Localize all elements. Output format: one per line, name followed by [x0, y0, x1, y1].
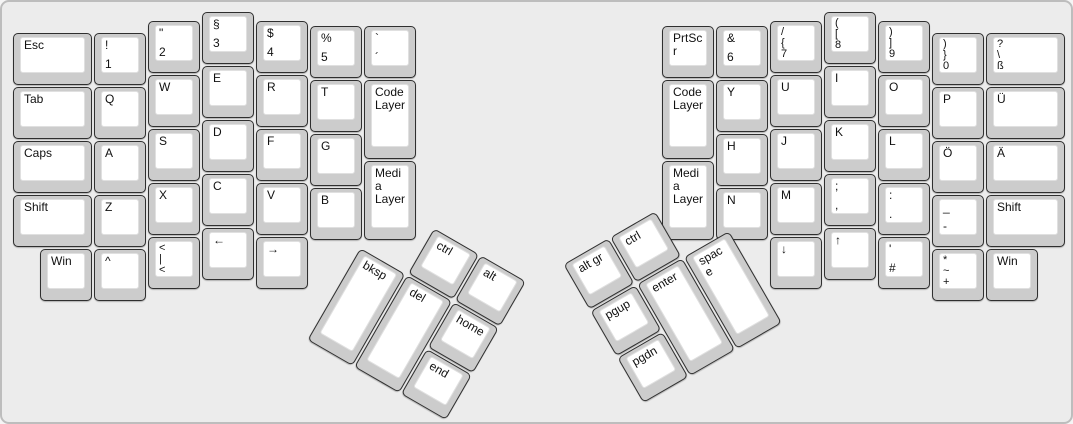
key-legend: ctrl: [623, 222, 656, 249]
key-legend: W: [159, 81, 190, 94]
key-s[interactable]: S: [148, 129, 200, 181]
key-legend: Shift: [24, 201, 82, 214]
keycap-surface: §3: [209, 16, 247, 52]
keycap-surface: $4: [263, 25, 301, 61]
key-legend: N: [727, 194, 758, 207]
key-legend: M: [781, 189, 812, 202]
key-legend: home: [454, 313, 487, 340]
keycap-surface: L: [885, 133, 923, 169]
key-legend: 1: [105, 58, 136, 71]
keycap-surface: *~+: [939, 253, 977, 289]
key-legend: PrtScr: [673, 32, 704, 58]
key-media-layer-left[interactable]: Media Layer: [364, 161, 416, 240]
key-percent-5[interactable]: %5: [310, 26, 362, 78]
key-legend: pgup: [603, 295, 636, 322]
key-legend: C: [213, 180, 244, 193]
key-legend: 5: [321, 51, 352, 64]
key-d[interactable]: D: [202, 120, 254, 172]
key-legend: bksp: [360, 259, 393, 286]
key-legend: Shift: [997, 201, 1055, 214]
key-k[interactable]: K: [824, 120, 876, 172]
key-legend: Caps: [24, 147, 82, 160]
keycap-surface: A: [101, 145, 139, 181]
keycap-surface: "2: [155, 25, 193, 61]
key-legend: space: [696, 241, 736, 279]
keycap-surface: Esc: [20, 37, 85, 73]
key-legend: ": [159, 27, 190, 40]
keycap-surface: alt: [467, 262, 518, 312]
key-legend: 3: [213, 37, 244, 50]
key-legend: Win: [997, 255, 1028, 268]
key-legend: &: [727, 32, 758, 45]
keycap-surface: Code Layer: [669, 84, 707, 147]
keycap-surface: PrtScr: [669, 30, 707, 66]
key-legend: Esc: [24, 39, 82, 52]
key-legend: ß: [997, 61, 1055, 72]
key-legend: Code Layer: [375, 86, 406, 112]
key-caret[interactable]: ^: [94, 249, 146, 301]
key-legend: ,: [835, 199, 866, 212]
key-a-umlaut[interactable]: Ä: [986, 141, 1065, 193]
key-paren-9[interactable]: )]9: [878, 21, 930, 73]
key-legend: <: [159, 243, 190, 254]
keycap-surface: Caps: [20, 145, 85, 181]
key-legend: ': [889, 243, 920, 256]
key-legend: G: [321, 140, 352, 153]
key-legend: enter: [650, 268, 683, 295]
key-legend: 6: [727, 51, 758, 64]
keycap-surface: E: [209, 70, 247, 106]
key-arrow-left[interactable]: ←: [202, 228, 254, 280]
keycap-surface: Ö: [939, 145, 977, 181]
key-legend: R: [267, 81, 298, 94]
keycap-surface: V: [263, 187, 301, 223]
key-legend: ←: [213, 234, 244, 247]
key-arrow-right[interactable]: →: [256, 237, 308, 289]
key-slash-7[interactable]: /{7: [770, 21, 822, 73]
key-legend: 9: [889, 49, 920, 60]
key-legend: <: [159, 265, 190, 276]
keycap-surface: T: [317, 84, 355, 120]
key-j[interactable]: J: [770, 129, 822, 181]
key-legend: →: [267, 243, 298, 256]
keycap-surface: )}0: [939, 37, 977, 73]
key-a[interactable]: A: [94, 141, 146, 193]
keycap-surface: K: [831, 124, 869, 160]
keycap-surface: C: [209, 178, 247, 214]
keycap-surface: Q: [101, 91, 139, 127]
keycap-surface: W: [155, 79, 193, 115]
keycap-surface: ctrl: [618, 218, 669, 268]
key-z[interactable]: Z: [94, 195, 146, 247]
key-legend: V: [267, 189, 298, 202]
key-legend: B: [321, 194, 352, 207]
key-legend: ^: [105, 255, 136, 268]
key-underscore-hyphen[interactable]: _-: [932, 195, 984, 247]
keycap-surface: ←: [209, 232, 247, 268]
key-legend: Media Layer: [673, 167, 704, 206]
keycap-surface: Code Layer: [371, 84, 409, 147]
key-legend: /: [781, 27, 812, 38]
key-amp-6[interactable]: &6: [716, 26, 768, 78]
key-legend: 7: [781, 49, 812, 60]
keycap-surface: Media Layer: [371, 165, 409, 228]
key-legend: -: [943, 220, 974, 233]
keycap-surface: ctrl: [420, 235, 471, 285]
key-media-layer-right[interactable]: Media Layer: [662, 161, 714, 240]
key-u-umlaut[interactable]: Ü: [986, 87, 1065, 139]
key-legend: ;: [835, 180, 866, 193]
keycap-surface: Shift: [20, 199, 85, 235]
key-legend: O: [889, 81, 920, 94]
key-legend: _: [943, 201, 974, 214]
key-legend: I: [835, 72, 866, 85]
key-semicolon-comma[interactable]: ;,: [824, 174, 876, 226]
keycap-surface: ;,: [831, 178, 869, 214]
key-u[interactable]: U: [770, 75, 822, 127]
key-h[interactable]: H: [716, 134, 768, 186]
key-o[interactable]: O: [878, 75, 930, 127]
key-legend: X: [159, 189, 190, 202]
key-tab[interactable]: Tab: [13, 87, 92, 139]
key-legend: :: [889, 189, 920, 202]
key-i[interactable]: I: [824, 66, 876, 118]
key-arrow-up[interactable]: ↑: [824, 228, 876, 280]
key-colon-period[interactable]: :.: [878, 183, 930, 235]
key-legend: L: [889, 135, 920, 148]
keycap-surface: I: [831, 70, 869, 106]
keycap-surface: O: [885, 79, 923, 115]
key-legend: %: [321, 32, 352, 45]
key-angle-pipe[interactable]: <|<: [148, 237, 200, 289]
key-legend: end: [427, 360, 460, 387]
key-w[interactable]: W: [148, 75, 200, 127]
key-legend: 4: [267, 46, 298, 59]
key-legend: .: [889, 208, 920, 221]
key-star-tilde-plus[interactable]: *~+: [932, 249, 984, 301]
key-section-3[interactable]: §3: [202, 12, 254, 64]
key-r[interactable]: R: [256, 75, 308, 127]
key-legend: Code Layer: [673, 86, 704, 112]
key-t[interactable]: T: [310, 80, 362, 132]
key-exclam-1[interactable]: !1: [94, 33, 146, 85]
keycap-surface: ?\ß: [993, 37, 1058, 73]
key-legend: (: [835, 18, 866, 29]
keycap-surface: Ü: [993, 91, 1058, 127]
key-legend: K: [835, 126, 866, 139]
key-legend: 0: [943, 61, 974, 72]
key-legend: `: [375, 32, 406, 45]
keycap-surface: G: [317, 138, 355, 174]
keycap-surface: D: [209, 124, 247, 160]
key-legend: Win: [51, 255, 82, 268]
keycap-surface: →: [263, 241, 301, 277]
key-legend: F: [267, 135, 298, 148]
key-legend: ?: [997, 39, 1055, 50]
keycap-surface: '#: [885, 241, 923, 277]
key-legend: Media Layer: [375, 167, 406, 206]
keycap-surface: Win: [47, 253, 85, 289]
key-p[interactable]: P: [932, 87, 984, 139]
keycap-surface: &6: [723, 30, 761, 66]
key-legend: ´: [375, 51, 406, 64]
key-dollar-4[interactable]: $4: [256, 21, 308, 73]
keycap-surface: P: [939, 91, 977, 127]
key-n[interactable]: N: [716, 188, 768, 240]
keycap-surface: Media Layer: [669, 165, 707, 228]
key-v[interactable]: V: [256, 183, 308, 235]
key-quote-2[interactable]: "2: [148, 21, 200, 73]
key-legend: S: [159, 135, 190, 148]
key-legend: 8: [835, 40, 866, 51]
key-grave-acute[interactable]: `´: [364, 26, 416, 78]
keycap-surface: J: [777, 133, 815, 169]
key-legend: U: [781, 81, 812, 94]
keycap-surface: F: [263, 133, 301, 169]
key-e[interactable]: E: [202, 66, 254, 118]
key-code-layer-left[interactable]: Code Layer: [364, 80, 416, 159]
key-prtscr[interactable]: PrtScr: [662, 26, 714, 78]
keycap-surface: Tab: [20, 91, 85, 127]
key-legend: A: [105, 147, 136, 160]
keycap-surface: <|<: [155, 241, 193, 277]
key-caps[interactable]: Caps: [13, 141, 92, 193]
keycap-surface: _-: [939, 199, 977, 235]
keycap-surface: U: [777, 79, 815, 115]
key-q[interactable]: Q: [94, 87, 146, 139]
keycap-surface: Ä: [993, 145, 1058, 181]
keycap-surface: Z: [101, 199, 139, 235]
key-arrow-down[interactable]: ↓: [770, 237, 822, 289]
key-legend: Tab: [24, 93, 82, 106]
key-legend: ): [889, 27, 920, 38]
keycap-surface: H: [723, 138, 761, 174]
key-paren-8[interactable]: ([8: [824, 12, 876, 64]
key-y[interactable]: Y: [716, 80, 768, 132]
key-apostrophe-hash[interactable]: '#: [878, 237, 930, 289]
key-l[interactable]: L: [878, 129, 930, 181]
key-g[interactable]: G: [310, 134, 362, 186]
key-legend: ↓: [781, 243, 812, 256]
key-legend: J: [781, 135, 812, 148]
key-legend: !: [105, 39, 136, 52]
keycap-surface: `´: [371, 30, 409, 66]
key-esc[interactable]: Esc: [13, 33, 92, 85]
key-legend: ): [943, 39, 974, 50]
keycap-surface: ^: [101, 253, 139, 289]
keycap-surface: B: [317, 192, 355, 228]
key-shift-right[interactable]: Shift: [986, 195, 1065, 247]
key-legend: $: [267, 27, 298, 40]
key-legend: ↑: [835, 234, 866, 247]
keycap-surface: Y: [723, 84, 761, 120]
key-legend: +: [943, 277, 974, 288]
keycap-surface: X: [155, 187, 193, 223]
key-legend: 2: [159, 46, 190, 59]
keycap-surface: alt gr: [571, 245, 622, 295]
key-legend: pgdn: [630, 342, 663, 369]
keyboard-layout-canvas: Esc!1"2§3$4%5`´TabQWERTCode LayerCapsASD…: [0, 0, 1073, 424]
key-legend: T: [321, 86, 352, 99]
keycap-surface: /{7: [777, 25, 815, 61]
key-legend: Ä: [997, 147, 1055, 160]
keycap-surface: ([8: [831, 16, 869, 52]
key-paren-0[interactable]: )}0: [932, 33, 984, 85]
key-legend: P: [943, 93, 974, 106]
key-legend: E: [213, 72, 244, 85]
keycap-surface: ↑: [831, 232, 869, 268]
key-legend: Q: [105, 93, 136, 106]
key-legend: D: [213, 126, 244, 139]
key-legend: Ü: [997, 93, 1055, 106]
key-c[interactable]: C: [202, 174, 254, 226]
keycap-surface: !1: [101, 37, 139, 73]
key-legend: ctrl: [434, 239, 467, 266]
key-m[interactable]: M: [770, 183, 822, 235]
key-legend: §: [213, 18, 244, 31]
key-o-umlaut[interactable]: Ö: [932, 141, 984, 193]
key-legend: \: [997, 50, 1055, 61]
key-win-right[interactable]: Win: [986, 249, 1038, 301]
key-legend: alt gr: [576, 249, 609, 276]
keycap-surface: Shift: [993, 199, 1058, 235]
key-legend: Y: [727, 86, 758, 99]
key-question-eszett[interactable]: ?\ß: [986, 33, 1065, 85]
key-win-left[interactable]: Win: [40, 249, 92, 301]
key-legend: Z: [105, 201, 136, 214]
key-legend: H: [727, 140, 758, 153]
key-legend: del: [407, 286, 440, 313]
keycap-surface: Win: [993, 253, 1031, 289]
keycap-surface: M: [777, 187, 815, 223]
keycap-surface: S: [155, 133, 193, 169]
keycap-surface: :.: [885, 187, 923, 223]
key-code-layer-right[interactable]: Code Layer: [662, 80, 714, 159]
key-b[interactable]: B: [310, 188, 362, 240]
key-shift-left[interactable]: Shift: [13, 195, 92, 247]
key-legend: alt: [481, 266, 514, 293]
keycap-surface: N: [723, 192, 761, 228]
key-legend: #: [889, 262, 920, 275]
keycap-surface: %5: [317, 30, 355, 66]
keycap-surface: )]9: [885, 25, 923, 61]
key-f[interactable]: F: [256, 129, 308, 181]
keycap-surface: R: [263, 79, 301, 115]
key-x[interactable]: X: [148, 183, 200, 235]
keycap-surface: ↓: [777, 241, 815, 277]
key-legend: Ö: [943, 147, 974, 160]
